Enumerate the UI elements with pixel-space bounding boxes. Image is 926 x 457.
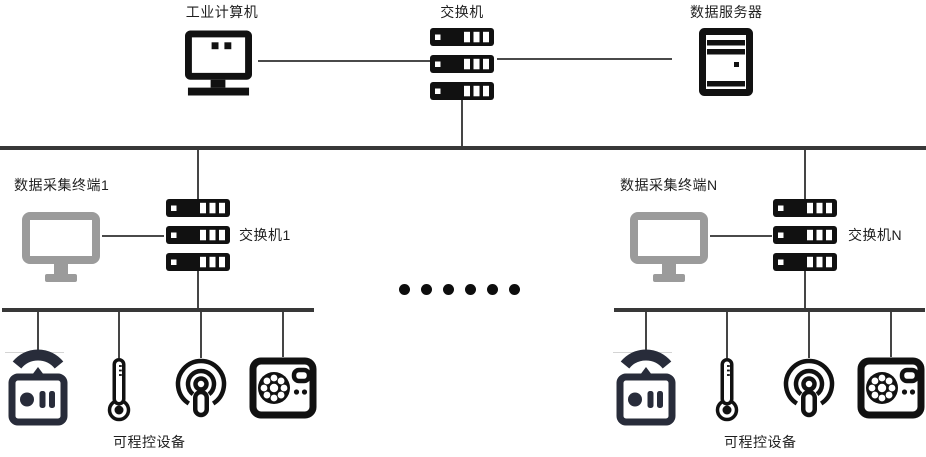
switch-icon: [430, 28, 494, 100]
broadcast-icon: [171, 356, 231, 422]
switch-1-label: 交换机1: [239, 227, 291, 243]
industrial-computer-label: 工业计算机: [170, 4, 274, 20]
remote-control-icon: [8, 348, 68, 426]
terminal-monitor-icon: [22, 212, 100, 286]
link-computer-switch: [258, 60, 430, 62]
link-terminal1-switch1: [102, 235, 164, 237]
ellipsis-dot: [465, 284, 476, 295]
ellipsis-dot: [443, 284, 454, 295]
link-bus-switch1: [197, 150, 199, 200]
ellipsis-dot: [399, 284, 410, 295]
main-switch-label: 交换机: [428, 4, 496, 20]
industrial-computer-icon: [185, 30, 252, 96]
devices-right-label: 可程控设备: [724, 434, 797, 450]
link-terminalN-switchN: [710, 235, 772, 237]
switch-1-icon: [166, 199, 230, 271]
ellipsis-dot: [421, 284, 432, 295]
link-switch-server: [497, 58, 672, 60]
data-server-label: 数据服务器: [690, 4, 762, 20]
server-icon: [699, 28, 753, 96]
drop-line-remote-right: [645, 312, 647, 350]
drop-line-panel-left: [282, 312, 284, 357]
link-switchN-devicebus: [804, 271, 806, 308]
drop-line-broadcast-left: [200, 312, 202, 358]
link-bus-switchN: [804, 150, 806, 200]
ellipsis-dot: [487, 284, 498, 295]
terminal-monitor-icon: [630, 212, 708, 286]
link-switch-bus: [461, 98, 463, 146]
bus-line-bottom-left: [2, 308, 314, 312]
link-switch1-devicebus: [197, 271, 199, 308]
ellipsis-dots: [399, 284, 520, 295]
drop-line-panel-right: [890, 312, 892, 357]
remote-control-icon: [616, 348, 676, 426]
thermometer-icon: [107, 358, 131, 422]
switch-n-label: 交换机N: [848, 227, 902, 243]
drop-line-thermometer-right: [726, 312, 728, 358]
terminal-1-label: 数据采集终端1: [14, 177, 109, 193]
broadcast-icon: [779, 356, 839, 422]
drop-line-broadcast-right: [808, 312, 810, 358]
control-panel-icon: [857, 357, 925, 419]
bus-line-top: [0, 146, 926, 150]
control-panel-icon: [249, 357, 317, 419]
ellipsis-dot: [509, 284, 520, 295]
thermometer-icon: [715, 358, 739, 422]
switch-n-icon: [773, 199, 837, 271]
drop-line-remote-left: [37, 312, 39, 350]
terminal-n-label: 数据采集终端N: [620, 177, 718, 193]
drop-line-thermometer-left: [118, 312, 120, 358]
bus-line-bottom-right: [614, 308, 925, 312]
devices-left-label: 可程控设备: [113, 434, 186, 450]
network-diagram: 工业计算机 交换机 数据服务器 数据采集终端1 交换机1 数据采集终端N 交换机…: [0, 0, 926, 457]
